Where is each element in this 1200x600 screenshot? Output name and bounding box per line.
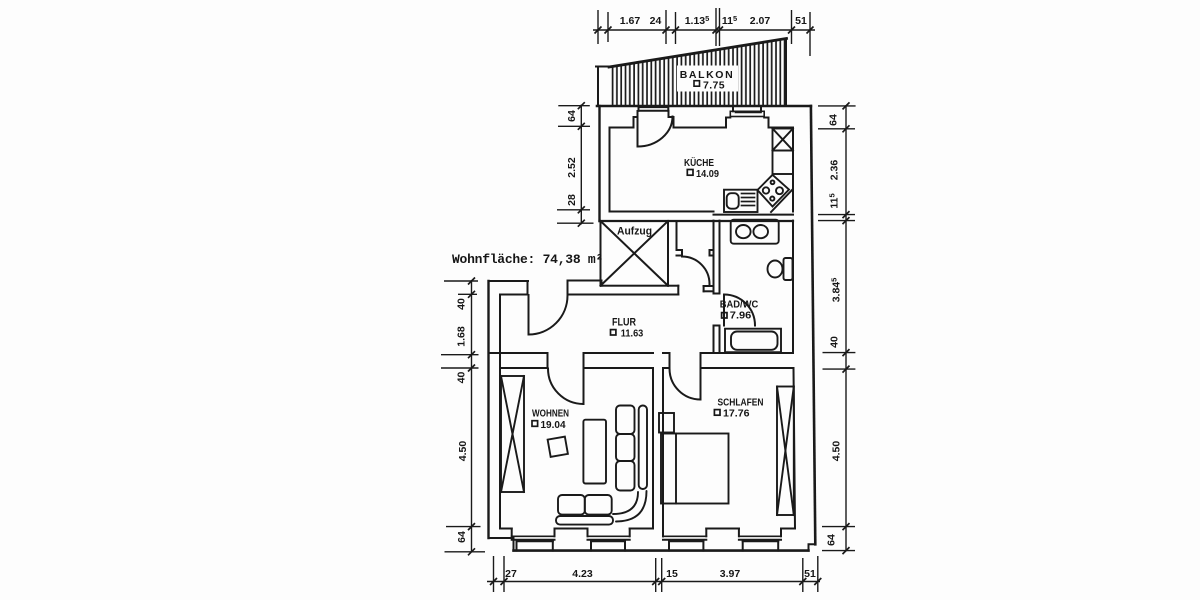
svg-text:2.36: 2.36: [829, 160, 841, 181]
svg-text:40: 40: [456, 372, 468, 384]
svg-text:Aufzug: Aufzug: [617, 226, 652, 238]
svg-text:17.76: 17.76: [723, 408, 750, 420]
svg-text:64: 64: [566, 110, 578, 122]
svg-text:15: 15: [666, 568, 678, 580]
svg-text:11.63: 11.63: [621, 328, 644, 340]
svg-text:1.67: 1.67: [620, 15, 641, 27]
svg-text:64: 64: [456, 531, 468, 543]
svg-text:40: 40: [829, 336, 841, 348]
svg-text:4.50: 4.50: [457, 441, 469, 462]
svg-text:51: 51: [804, 568, 816, 580]
svg-text:SCHLAFEN: SCHLAFEN: [718, 396, 764, 408]
svg-text:1.68: 1.68: [456, 326, 468, 347]
svg-text:28: 28: [566, 194, 578, 206]
svg-text:27: 27: [505, 568, 517, 580]
svg-text:64: 64: [828, 114, 840, 126]
svg-text:4.50: 4.50: [831, 441, 843, 462]
svg-text:7.75: 7.75: [703, 80, 725, 92]
svg-text:Wohnfläche: 74,38 m²: Wohnfläche: 74,38 m²: [452, 252, 603, 267]
svg-text:3.97: 3.97: [720, 568, 741, 580]
svg-text:7.96: 7.96: [730, 310, 752, 321]
svg-text:BAD/WC: BAD/WC: [720, 300, 759, 311]
svg-text:2.52: 2.52: [566, 157, 578, 178]
svg-text:WOHNEN: WOHNEN: [532, 408, 569, 420]
svg-text:51: 51: [795, 15, 807, 27]
svg-text:24: 24: [650, 15, 662, 27]
svg-text:19.04: 19.04: [541, 419, 566, 431]
svg-text:2.07: 2.07: [750, 15, 771, 27]
svg-text:14.09: 14.09: [696, 168, 719, 180]
svg-text:FLUR: FLUR: [612, 316, 636, 328]
svg-text:4.23: 4.23: [572, 568, 593, 580]
svg-text:40: 40: [456, 298, 468, 310]
svg-text:64: 64: [826, 534, 838, 546]
